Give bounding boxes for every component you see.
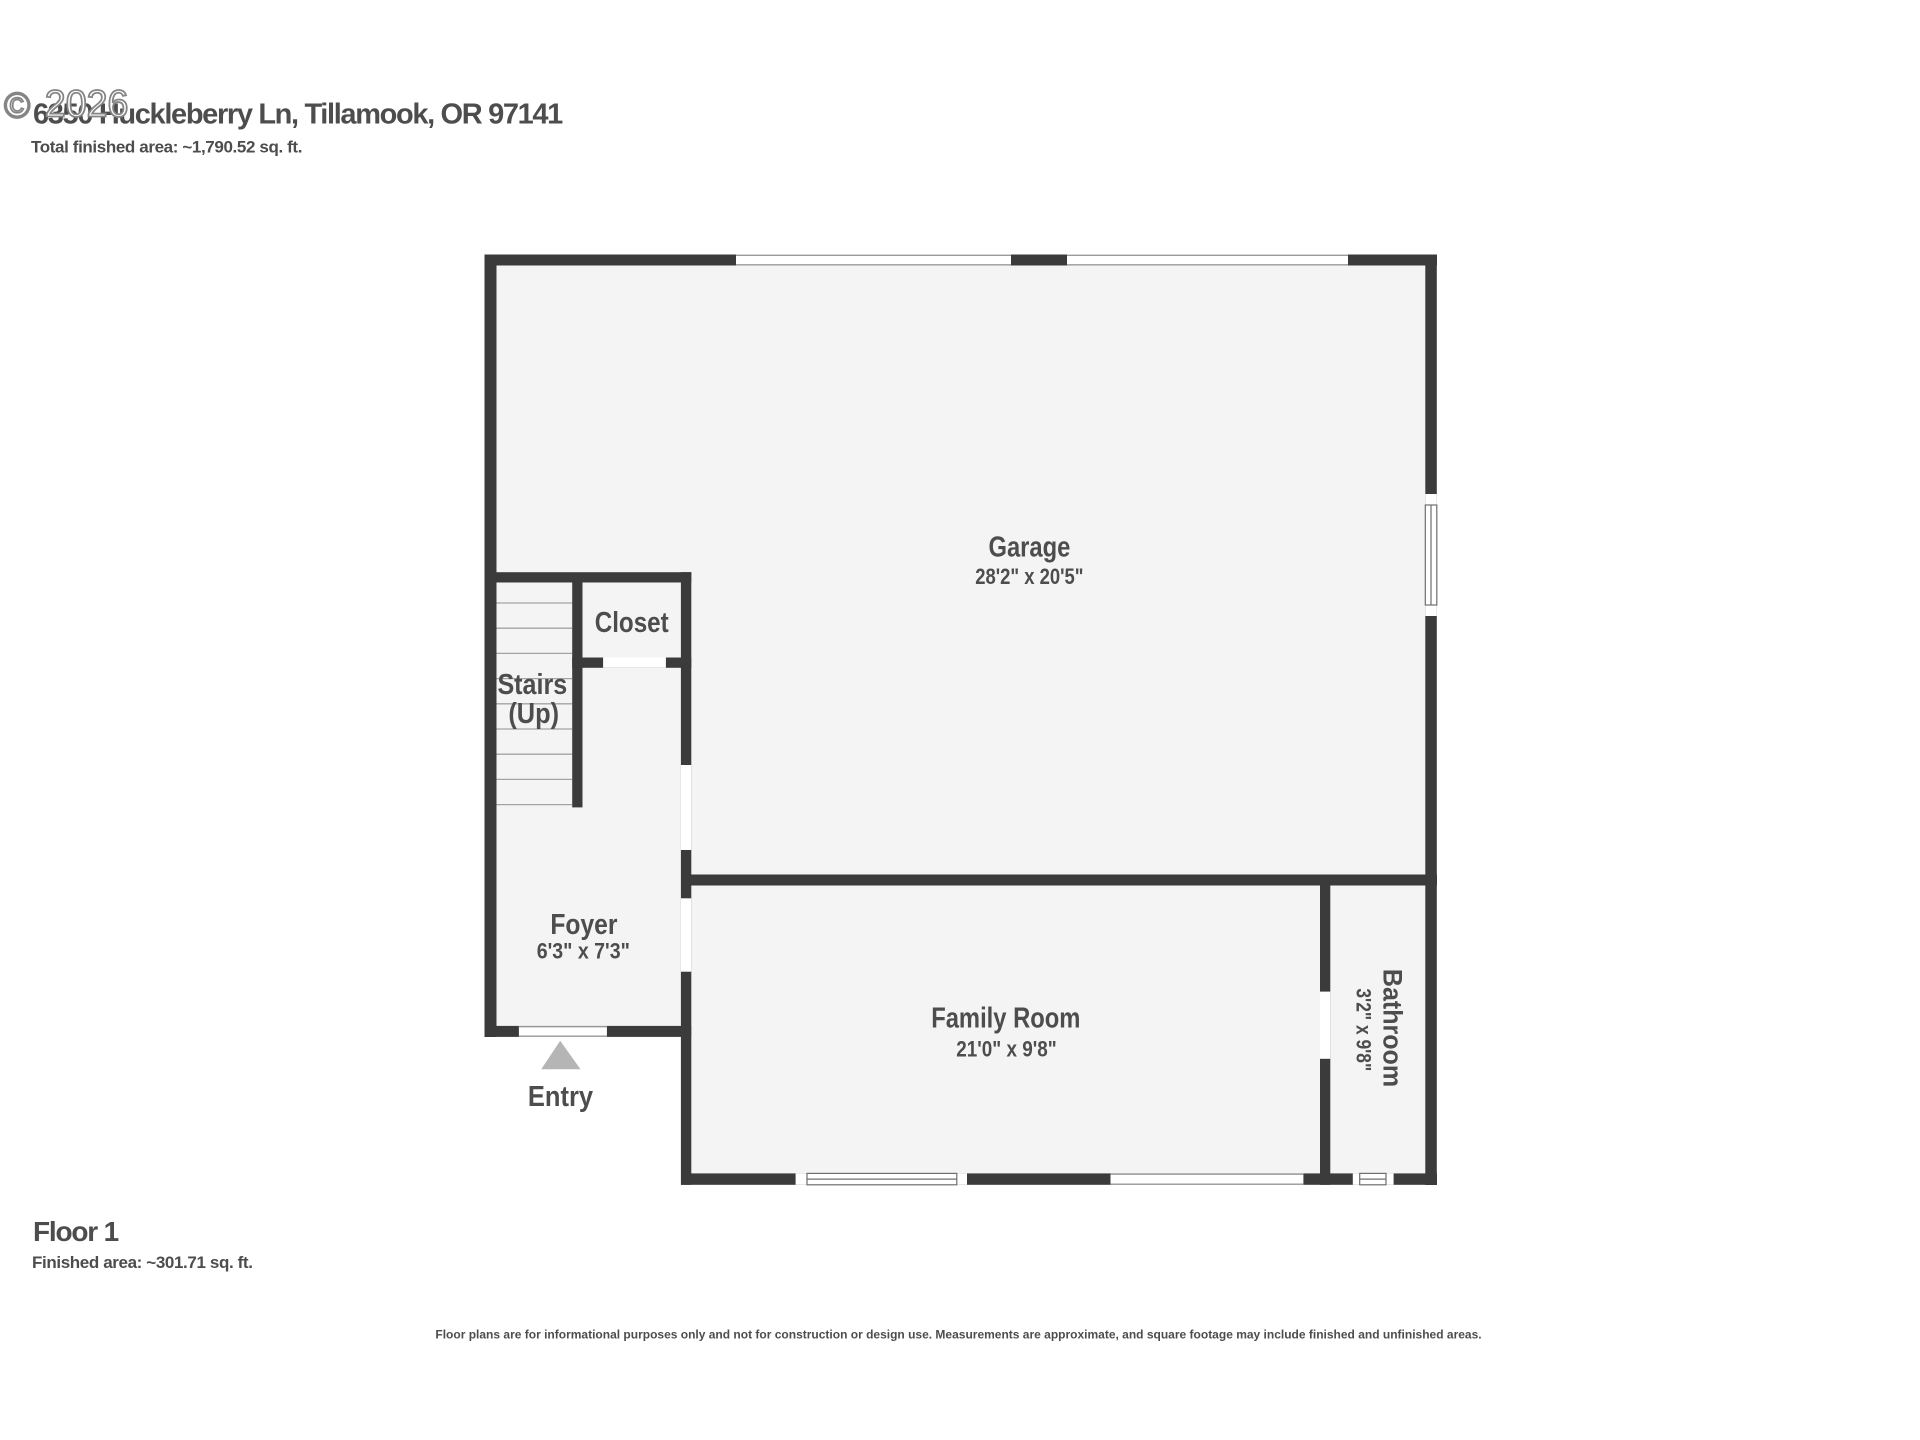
svg-text:Foyer: Foyer (550, 908, 618, 940)
svg-text:Finished area: ~301.71 sq. ft.: Finished area: ~301.71 sq. ft. (32, 1253, 253, 1272)
svg-text:21'0" x 9'8": 21'0" x 9'8" (956, 1037, 1056, 1062)
svg-text:Entry: Entry (528, 1079, 594, 1112)
svg-text:3'2" x 9'8": 3'2" x 9'8" (1351, 988, 1375, 1071)
svg-text:Floor plans are for informatio: Floor plans are for informational purpos… (435, 1328, 1481, 1342)
svg-text:(Up): (Up) (508, 696, 559, 729)
svg-text:Bathroom: Bathroom (1377, 969, 1406, 1087)
svg-text:Garage: Garage (988, 530, 1070, 563)
svg-text:Family Room: Family Room (931, 1001, 1080, 1034)
svg-text:2026: 2026 (45, 83, 129, 125)
svg-text:6'3" x 7'3": 6'3" x 7'3" (537, 939, 630, 964)
svg-text:28'2" x 20'5": 28'2" x 20'5" (975, 564, 1083, 589)
svg-text:Total finished area: ~1,790.52: Total finished area: ~1,790.52 sq. ft. (31, 138, 302, 157)
svg-text:Floor 1: Floor 1 (33, 1216, 119, 1247)
svg-text:Closet: Closet (595, 606, 669, 639)
svg-text:©: © (4, 85, 30, 125)
